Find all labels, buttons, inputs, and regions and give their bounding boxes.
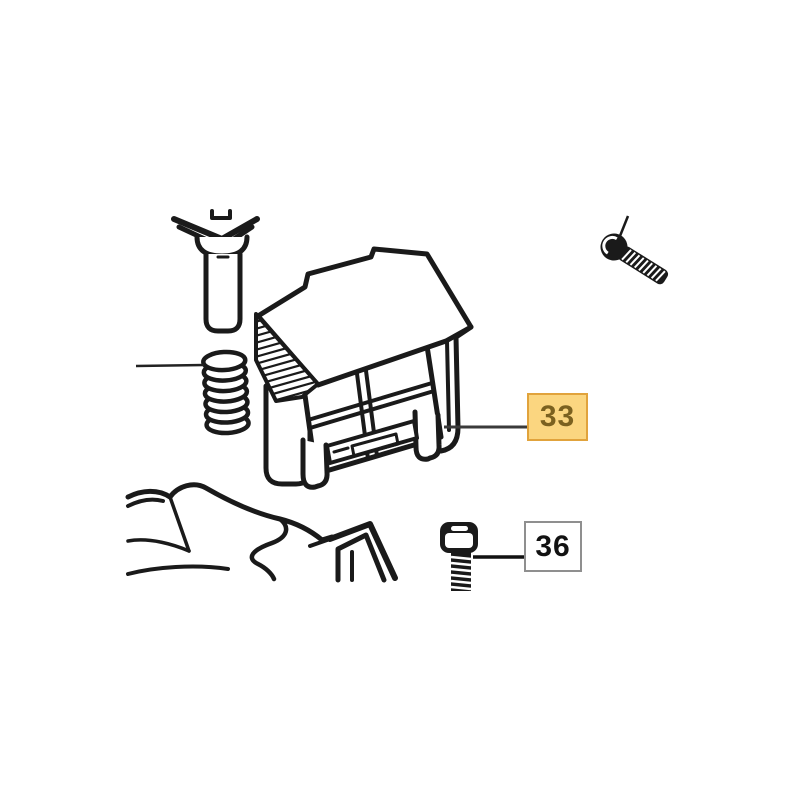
short-socket-screw-drawing bbox=[440, 522, 478, 591]
coil-spring-drawing bbox=[203, 351, 249, 434]
long-socket-screw-drawing bbox=[595, 216, 672, 291]
housing-top-drawing bbox=[128, 485, 395, 580]
callout-33-highlighted[interactable]: 33 bbox=[527, 393, 588, 441]
callout-33-label: 33 bbox=[540, 402, 575, 432]
leader-line-spring bbox=[136, 365, 204, 366]
exploded-view-drawing bbox=[0, 0, 800, 800]
callout-36-label: 36 bbox=[535, 532, 570, 562]
parts-diagram-canvas: 33 36 bbox=[0, 0, 800, 800]
callout-36[interactable]: 36 bbox=[524, 521, 582, 572]
headed-pin-drawing bbox=[174, 211, 257, 331]
latch-block-drawing bbox=[248, 249, 471, 487]
